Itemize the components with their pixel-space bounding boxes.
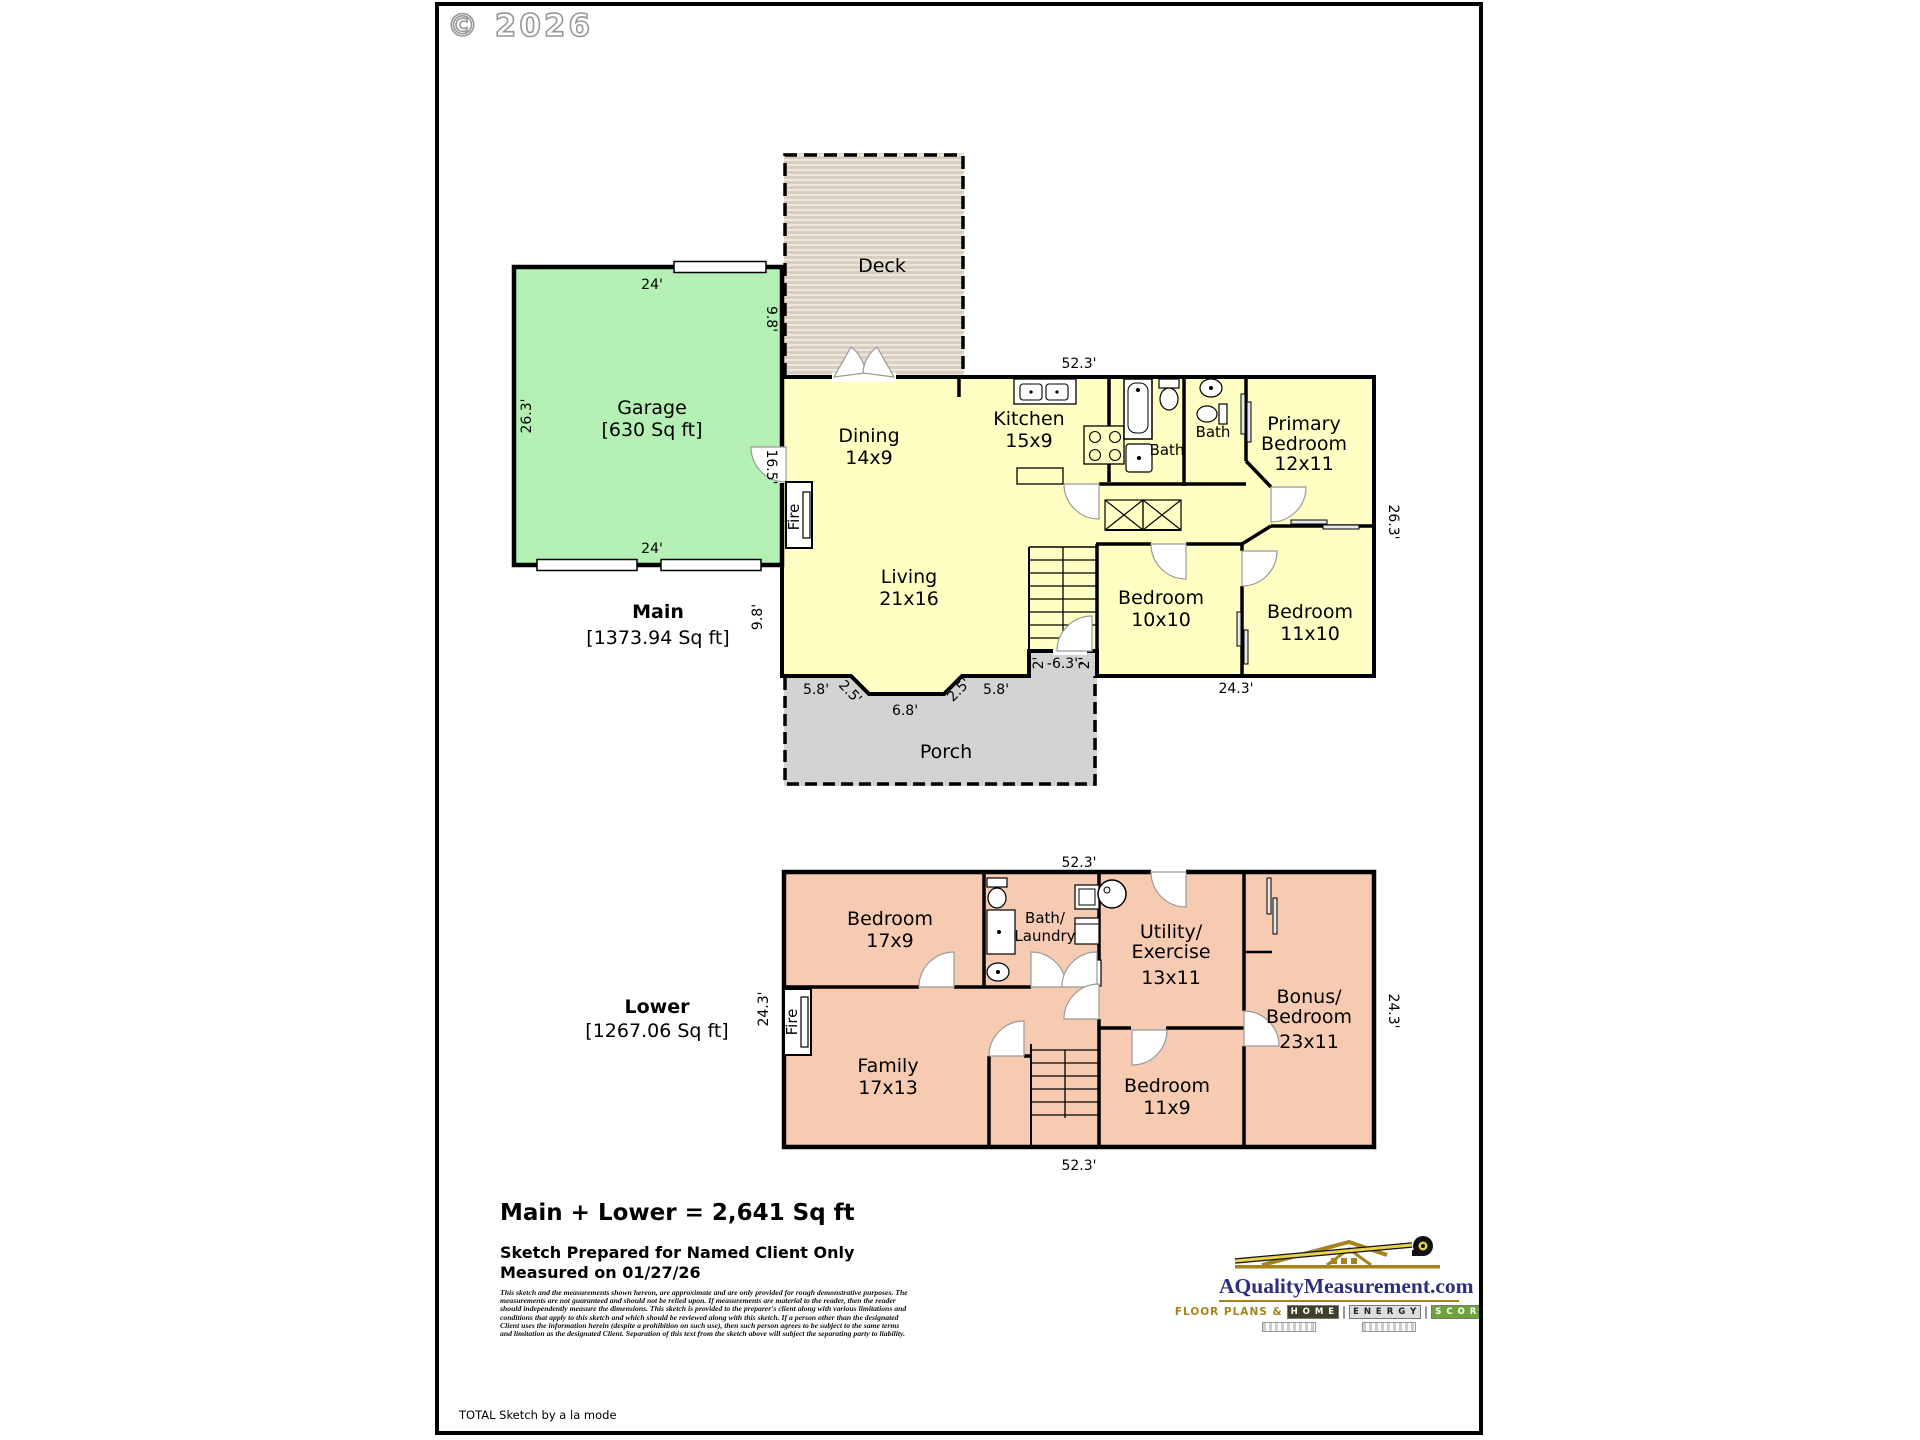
- kitchen-label: Kitchen: [993, 408, 1064, 430]
- dim-entry-c: 2': [1077, 657, 1093, 670]
- logo-house-tape-icon: [1227, 1236, 1452, 1270]
- floorplan-sheet: © 2026: [435, 2, 1483, 1435]
- bath-sink: [1200, 379, 1222, 397]
- bedroom11x10-label: Bedroom: [1267, 601, 1353, 623]
- dim-lower-bottom: 52.3': [1061, 1158, 1096, 1174]
- fire-label-lower: Fire: [783, 1009, 801, 1036]
- fire-label-main: Fire: [785, 504, 803, 531]
- living-dims: 21x16: [879, 588, 939, 610]
- utility-label2: Exercise: [1131, 941, 1210, 963]
- logo-badge-energy: E N E R G Y: [1349, 1305, 1421, 1319]
- kitchen-sink: [1014, 379, 1076, 404]
- garage-door-opening: [537, 560, 637, 571]
- lower-title: Lower: [625, 996, 691, 1018]
- bedroom11x10-dims: 11x10: [1280, 623, 1340, 645]
- dining-label: Dining: [838, 425, 899, 447]
- total-area-heading: Main + Lower = 2,641 Sq ft: [500, 1200, 855, 1226]
- bedroom11x9-label: Bedroom: [1124, 1075, 1210, 1097]
- dim-porch-c: 6.8': [892, 703, 918, 719]
- bath-laundry-label2: Laundry: [1014, 927, 1075, 945]
- dining-dims: 14x9: [845, 447, 893, 469]
- dim-main-right: 26.3': [1385, 504, 1401, 539]
- dim-garage-left: 26.3': [519, 398, 535, 433]
- logo-badge-home: H O M E: [1287, 1305, 1339, 1319]
- bath-vanity: [1126, 444, 1152, 472]
- washer: [1075, 918, 1099, 944]
- logo-badge-scores: S C O R E S: [1431, 1305, 1483, 1319]
- kitchen-dims: 15x9: [1005, 430, 1053, 452]
- dim-main-top: 52.3': [1061, 356, 1096, 372]
- thermometer-icon: [1343, 1306, 1345, 1319]
- dim-garage-top: 24': [641, 277, 663, 293]
- bath-vanity: [987, 910, 1015, 954]
- dim-garage-bottom: 24': [641, 541, 663, 557]
- toilet: [987, 878, 1007, 908]
- dim-porch-a: 5.8': [803, 682, 829, 698]
- logo-site-text: AQualityMeasurement.com: [1219, 1274, 1459, 1302]
- family-dims: 17x13: [858, 1077, 918, 1099]
- prepared-for-line: Sketch Prepared for Named Client Only: [500, 1243, 854, 1262]
- thermometer-icon: [1425, 1306, 1427, 1319]
- dim-entry-a: 2': [1031, 657, 1047, 670]
- porch-label: Porch: [920, 741, 972, 763]
- dim-lower-left: 24.3': [756, 991, 772, 1026]
- measured-date-line: Measured on 01/27/26: [500, 1263, 701, 1282]
- bath-label: Bath: [1150, 441, 1185, 459]
- bedroom10-label: Bedroom: [1118, 587, 1204, 609]
- primary-bedroom-label: Primary: [1267, 413, 1340, 435]
- utility-label: Utility/: [1140, 921, 1203, 943]
- aqualitymeasurement-logo: AQualityMeasurement.com Floor Plans & H …: [1219, 1236, 1459, 1332]
- bonus-label: Bonus/: [1276, 986, 1342, 1008]
- dim-porch-e: 5.8': [983, 682, 1009, 698]
- toilet: [1159, 379, 1179, 410]
- deck-label: Deck: [858, 255, 906, 277]
- logo-tagline: Floor Plans &: [1175, 1306, 1283, 1318]
- mini-badge: [1362, 1322, 1416, 1332]
- main-area: [1373.94 Sq ft]: [586, 627, 729, 649]
- dim-main-bottom: 24.3': [1218, 681, 1253, 697]
- garage-door-opening: [661, 560, 761, 571]
- main-level-plan: 52.3' Garage [630 Sq ft] 24' 24' 26.3' 9…: [514, 153, 1401, 786]
- disclaimer-text: This sketch and the measurements shown h…: [500, 1289, 910, 1338]
- lower-level-plan: 52.3' 52.3' 24.3' 24.3' Lower [1267.06 S…: [585, 855, 1401, 1174]
- water-heater: [1098, 880, 1126, 908]
- living-label: Living: [881, 566, 938, 588]
- garage-area-label: [630 Sq ft]: [601, 419, 702, 441]
- lower-area: [1267.06 Sq ft]: [585, 1020, 728, 1042]
- garage-window: [674, 262, 766, 273]
- bath-laundry-label: Bath/: [1025, 909, 1066, 927]
- total-sketch-credit: TOTAL Sketch by a la mode: [459, 1408, 617, 1422]
- dim-living-left: 9.8': [750, 604, 766, 630]
- family-label: Family: [857, 1055, 918, 1077]
- primary-bedroom-dims: 12x11: [1274, 453, 1334, 475]
- bedroom17-dims: 17x9: [866, 930, 914, 952]
- garage-label: Garage: [617, 397, 687, 419]
- dim-lower-top: 52.3': [1061, 855, 1096, 871]
- primary-bedroom-label2: Bedroom: [1261, 433, 1347, 455]
- dim-deck-side: 9.8': [763, 306, 779, 332]
- dim-garage-right: 16.5': [763, 449, 779, 484]
- shower: [1075, 885, 1099, 909]
- utility-dims: 13x11: [1141, 967, 1201, 989]
- main-title: Main: [632, 601, 684, 623]
- bedroom17-label: Bedroom: [847, 908, 933, 930]
- kitchen-stove: [1084, 426, 1124, 464]
- bath-sink: [987, 963, 1009, 981]
- bonus-label2: Bedroom: [1266, 1006, 1352, 1028]
- bonus-dims: 23x11: [1279, 1031, 1339, 1053]
- toilet: [1197, 404, 1227, 424]
- mini-badge: [1262, 1322, 1316, 1332]
- dim-lower-right: 24.3': [1385, 993, 1401, 1028]
- bath-label: Bath: [1196, 423, 1231, 441]
- bedroom11x9-dims: 11x9: [1143, 1097, 1191, 1119]
- bedroom10-dims: 10x10: [1131, 609, 1191, 631]
- bathtub: [1124, 379, 1152, 439]
